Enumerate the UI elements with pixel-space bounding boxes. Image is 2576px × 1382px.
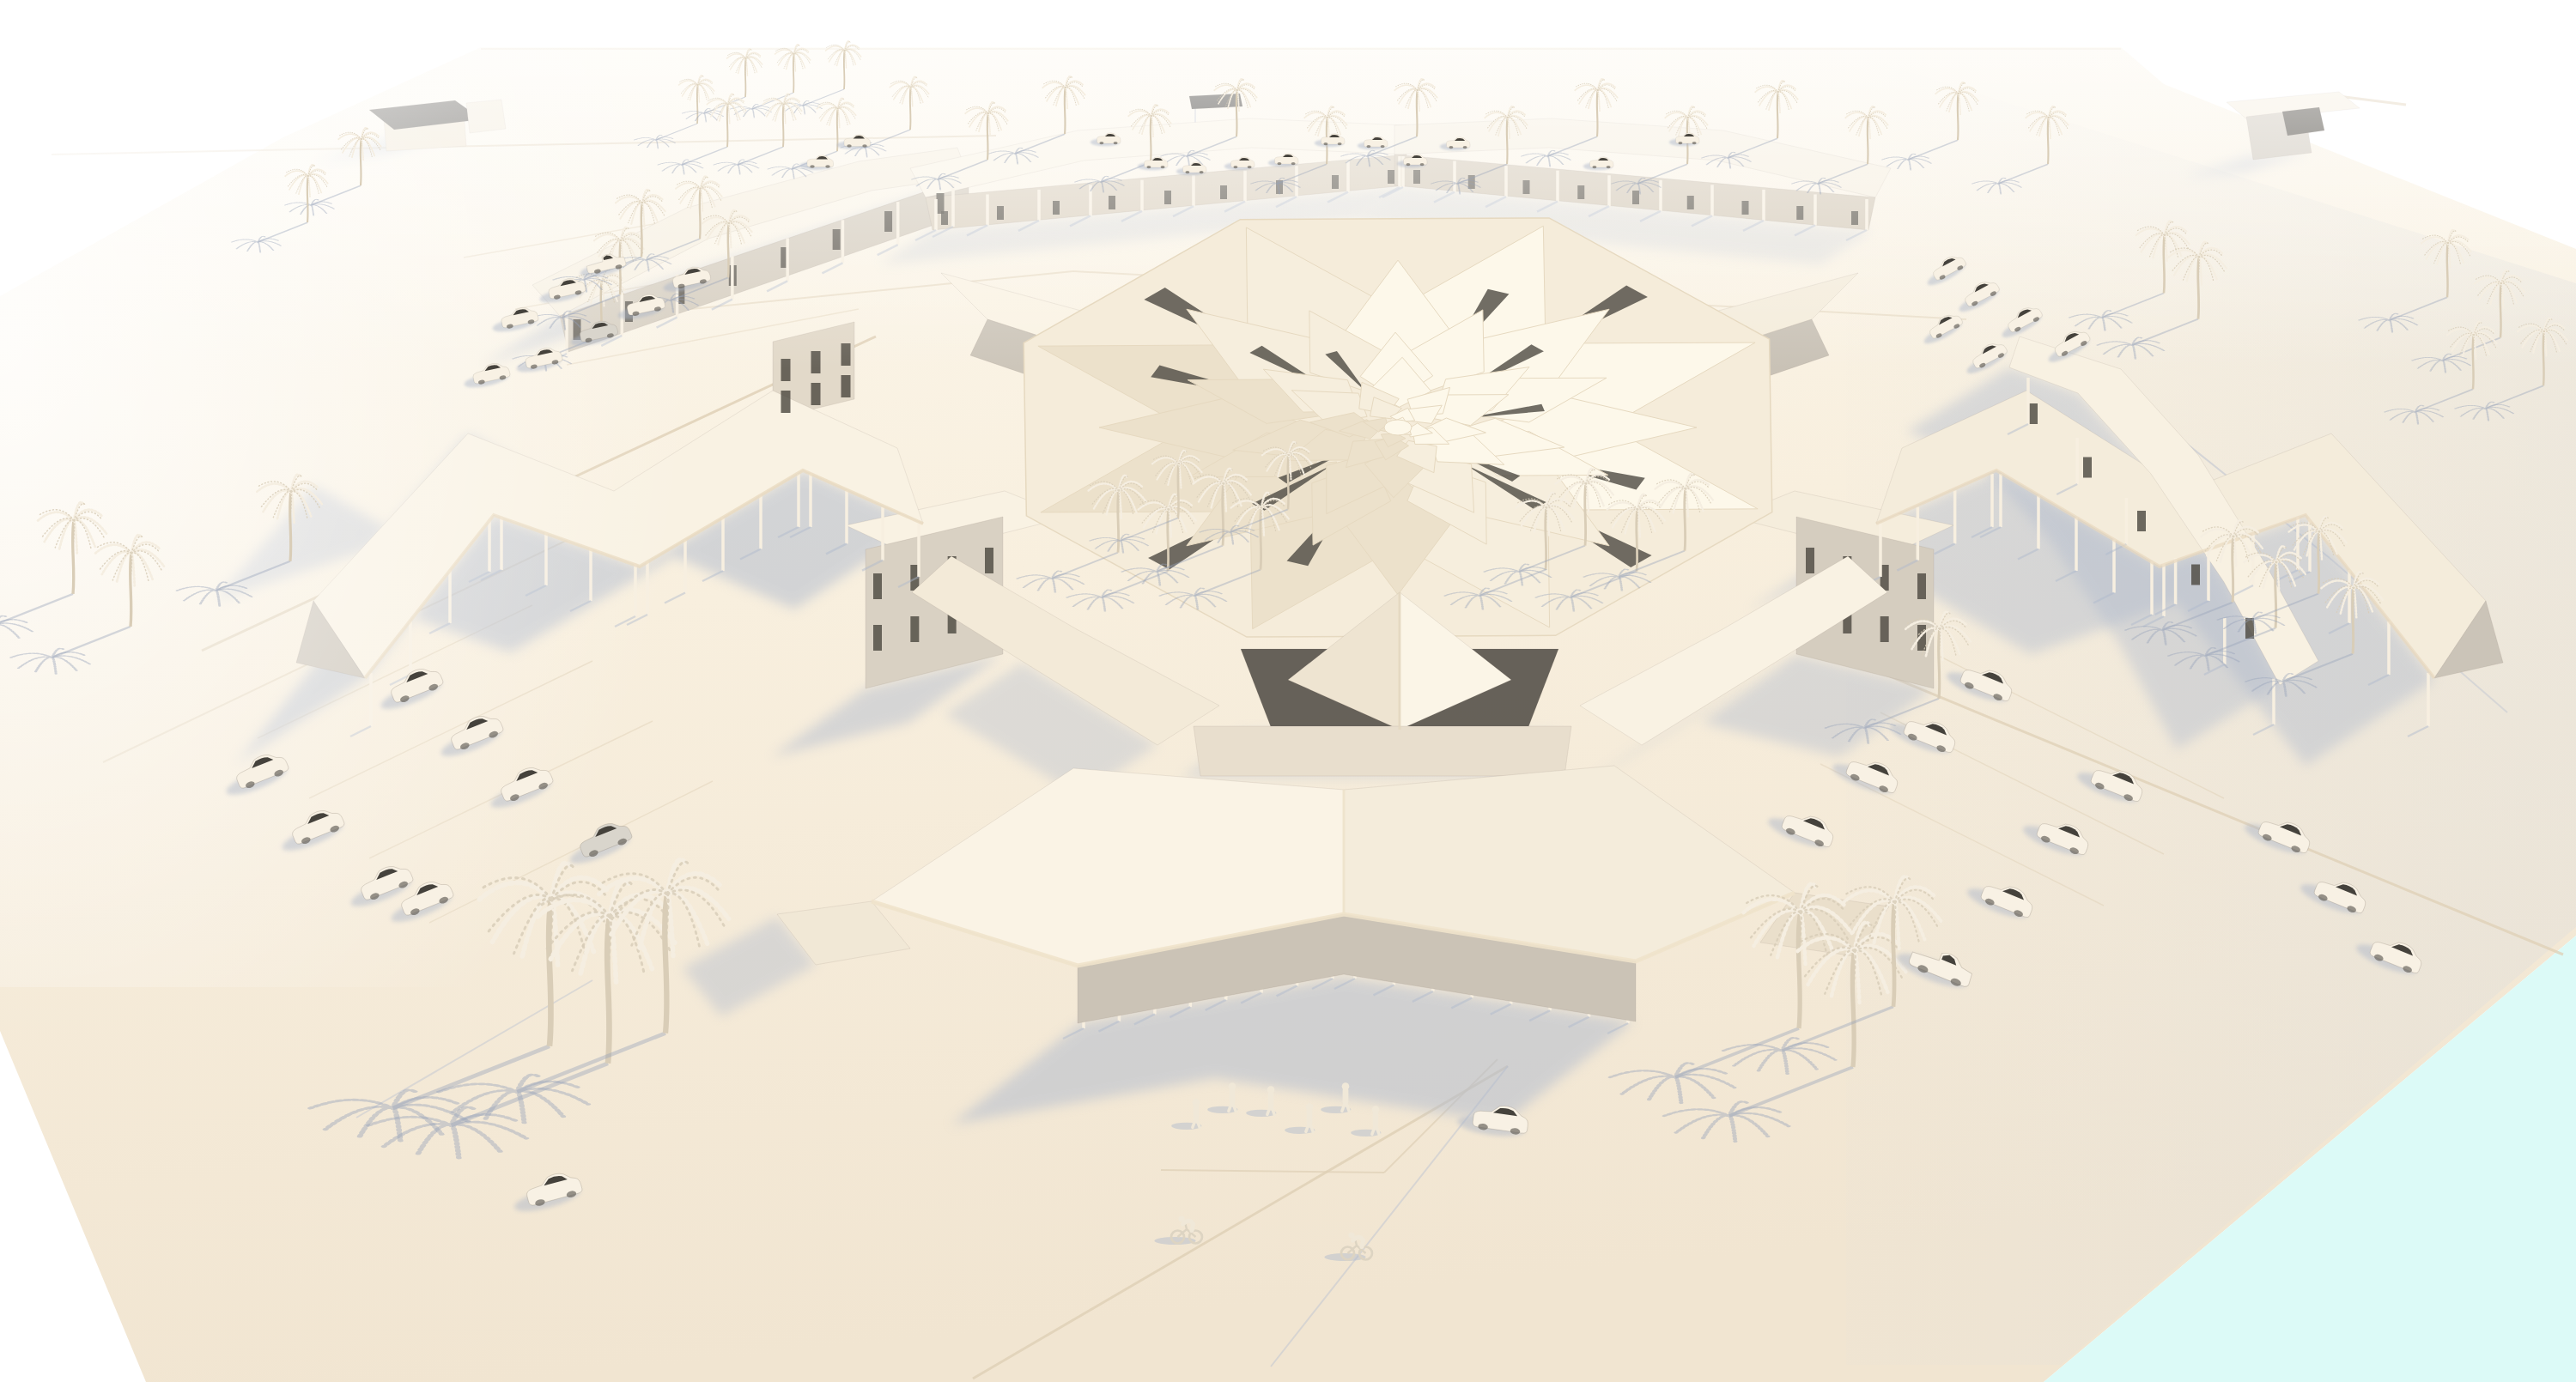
palm-trunk <box>727 105 728 148</box>
palm-trunk <box>1065 88 1066 134</box>
palm-trunk <box>910 88 911 130</box>
car-wheel <box>1678 142 1682 144</box>
car-wheel <box>847 144 852 148</box>
car-wheel <box>1449 146 1453 149</box>
car-wheel <box>1592 166 1596 168</box>
car-wheel <box>1277 162 1281 165</box>
palm-trunk <box>1417 90 1418 136</box>
palm-trunk <box>1597 90 1598 136</box>
car-wheel <box>1146 166 1151 168</box>
palm-trunk <box>2500 283 2501 337</box>
palm-trunk <box>1151 116 1151 162</box>
left-exposure-wash <box>0 0 773 987</box>
window <box>811 383 821 405</box>
car-wheel <box>1338 142 1342 145</box>
window <box>2083 458 2092 478</box>
car-wheel <box>1420 163 1425 166</box>
car-wheel <box>862 144 867 148</box>
palm-trunk <box>728 223 729 277</box>
palm-trunk <box>2048 118 2049 164</box>
car-wheel <box>1406 163 1410 166</box>
palm-trunk <box>987 113 988 160</box>
palm-trunk <box>1288 455 1289 509</box>
window <box>2029 403 2038 424</box>
window <box>2137 511 2146 531</box>
rose-apex <box>1384 420 1412 435</box>
render-figure: Aerial 3D architectural massing render: … <box>0 0 2576 1382</box>
palm-trunk <box>641 203 642 257</box>
car-wheel <box>1381 145 1385 148</box>
window <box>910 616 919 642</box>
car-wheel <box>1233 166 1237 168</box>
car-wheel <box>1200 171 1204 173</box>
car-wheel <box>1248 166 1252 168</box>
palm-trunk <box>361 139 361 185</box>
palm-trunk <box>1868 118 1868 164</box>
palm-trunk <box>1236 90 1237 136</box>
window <box>1917 573 1926 599</box>
palm-trunk <box>1958 94 1959 140</box>
palm-trunk <box>1507 118 1508 164</box>
palm-trunk <box>700 189 701 239</box>
window <box>873 573 882 599</box>
car-wheel <box>1114 142 1118 144</box>
window <box>841 375 851 397</box>
palm-trunk <box>793 54 794 93</box>
window <box>2191 565 2200 585</box>
cyclist-head <box>1178 1215 1184 1221</box>
car-wheel <box>1692 142 1697 144</box>
car-wheel <box>1366 145 1370 148</box>
palm-trunk <box>1777 92 1778 138</box>
cyclist-head <box>1348 1232 1354 1238</box>
car-wheel <box>810 165 815 168</box>
palm-trunk <box>783 105 784 148</box>
car-wheel <box>1185 171 1189 173</box>
car-wheel <box>825 165 830 168</box>
window <box>781 391 791 413</box>
palm-trunk <box>745 58 746 97</box>
window <box>1806 548 1814 573</box>
south-wing-backwall <box>1194 726 1571 776</box>
car-wheel <box>1607 166 1611 168</box>
window <box>873 625 882 651</box>
palm-trunk <box>2447 243 2448 297</box>
car-wheel <box>1463 146 1467 149</box>
palm-trunk <box>844 51 845 89</box>
car-wheel <box>1161 166 1165 168</box>
palm-trunk <box>307 176 308 222</box>
rose-roof-layer <box>1024 218 1772 637</box>
palm-trunk <box>2543 331 2544 385</box>
palm-trunk <box>2473 335 2474 389</box>
window <box>1880 616 1889 642</box>
car-wheel <box>1099 142 1103 144</box>
car-wheel <box>1323 142 1327 145</box>
window <box>985 548 993 573</box>
palm-trunk <box>1178 464 1179 518</box>
car-wheel <box>1291 162 1296 165</box>
architectural-render <box>0 0 2576 1382</box>
